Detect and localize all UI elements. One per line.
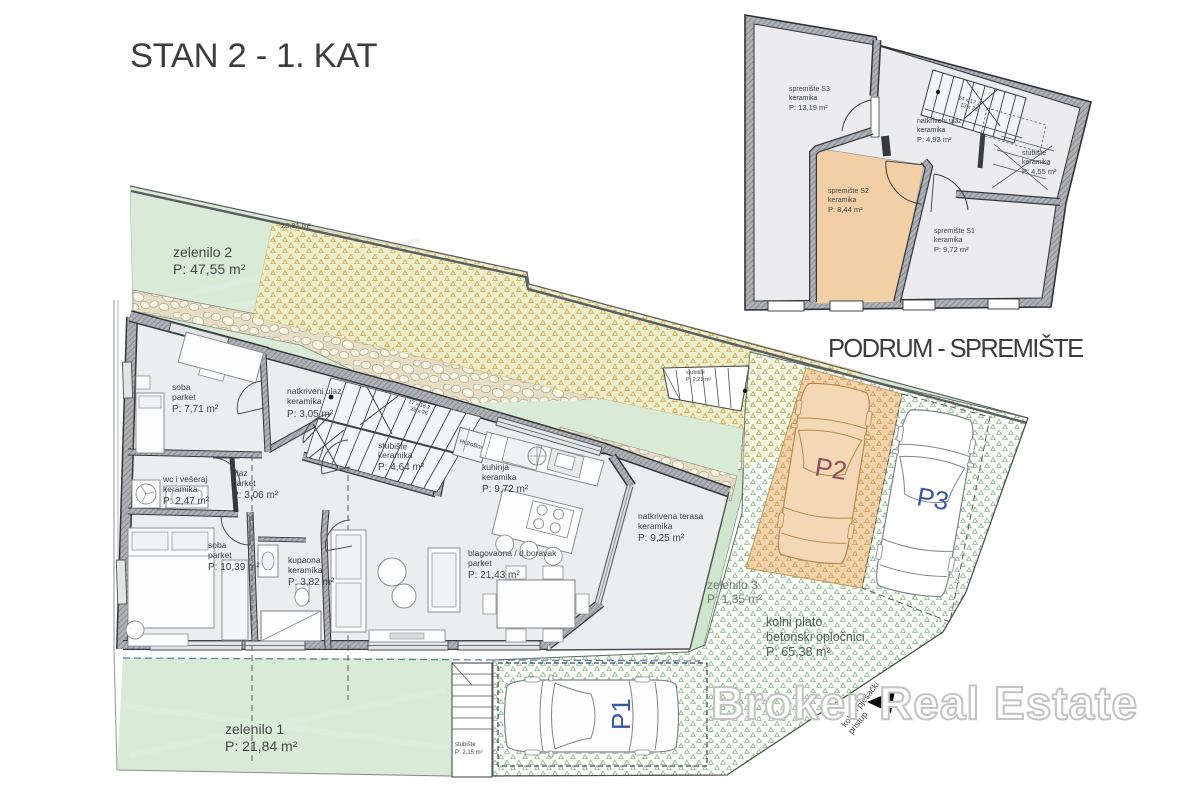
svg-text:soba: soba xyxy=(208,540,227,550)
svg-text:keramika: keramika xyxy=(378,450,413,460)
svg-text:Broker Real Estate: Broker Real Estate xyxy=(711,677,1138,729)
svg-text:P: 2,47 m²: P: 2,47 m² xyxy=(163,496,210,507)
svg-text:P: 21,43 m²: P: 21,43 m² xyxy=(468,570,520,581)
svg-text:P: 3,82 m²: P: 3,82 m² xyxy=(288,577,335,588)
svg-text:spremište S2: spremište S2 xyxy=(828,188,869,195)
svg-text:keramika: keramika xyxy=(1022,159,1051,166)
svg-text:keramika: keramika xyxy=(482,472,517,482)
svg-text:keramika: keramika xyxy=(917,127,946,134)
svg-text:keramika: keramika xyxy=(934,237,963,244)
svg-text:zelenilo 2: zelenilo 2 xyxy=(173,244,232,260)
svg-text:P1: P1 xyxy=(606,698,636,730)
svg-text:ulaz: ulaz xyxy=(232,468,248,478)
svg-text:parket: parket xyxy=(468,558,492,568)
svg-text:parket: parket xyxy=(172,392,196,402)
svg-text:P: 21,84 m²: P: 21,84 m² xyxy=(225,738,298,754)
svg-text:blagovaona / d.boravak: blagovaona / d.boravak xyxy=(468,548,557,558)
svg-text:kuhinja: kuhinja xyxy=(482,462,509,472)
svg-text:P: 3,05 m²: P: 3,05 m² xyxy=(287,409,334,420)
svg-text:P: 47,55 m²: P: 47,55 m² xyxy=(173,261,246,277)
svg-text:keramika: keramika xyxy=(288,565,323,575)
svg-text:keramika: keramika xyxy=(287,396,322,406)
svg-text:parket: parket xyxy=(208,550,232,560)
svg-text:P: 9,72 m²: P: 9,72 m² xyxy=(934,245,969,254)
svg-text:zelenilo 1: zelenilo 1 xyxy=(225,721,284,737)
svg-text:natkriveni ulaz: natkriveni ulaz xyxy=(287,386,341,396)
svg-text:P: 2,23 m²: P: 2,23 m² xyxy=(686,377,712,383)
svg-text:stubište: stubište xyxy=(1022,150,1046,157)
svg-text:keramika: keramika xyxy=(828,197,857,204)
svg-text:P3: P3 xyxy=(915,481,952,516)
svg-text:zelenilo 3: zelenilo 3 xyxy=(707,578,758,592)
svg-text:P: 8,44 m²: P: 8,44 m² xyxy=(828,205,863,214)
svg-text:keramika: keramika xyxy=(638,521,673,531)
svg-text:P2: P2 xyxy=(813,451,849,486)
svg-text:P: 65,38 m²: P: 65,38 m² xyxy=(766,645,831,659)
svg-text:natkrivena terasa: natkrivena terasa xyxy=(638,511,703,521)
svg-text:P: 9,25 m²: P: 9,25 m² xyxy=(638,533,685,544)
svg-text:stubište: stubište xyxy=(686,370,705,376)
svg-text:parket: parket xyxy=(232,478,256,488)
svg-text:STAN 2 - 1. KAT: STAN 2 - 1. KAT xyxy=(130,37,378,75)
svg-text:P: 7,71 m²: P: 7,71 m² xyxy=(172,404,219,415)
svg-text:P: 13,19 m²: P: 13,19 m² xyxy=(789,103,828,112)
svg-text:wc i vešeraj: wc i vešeraj xyxy=(162,474,208,484)
svg-text:P: 1,35 m²: P: 1,35 m² xyxy=(707,592,762,606)
svg-text:betonski opločnici: betonski opločnici xyxy=(766,630,865,644)
svg-text:P: 4,55 m²: P: 4,55 m² xyxy=(1022,167,1057,176)
svg-text:spremište S3: spremište S3 xyxy=(789,86,830,93)
svg-text:stubište: stubište xyxy=(455,742,476,748)
svg-text:PODRUM - SPREMIŠTE: PODRUM - SPREMIŠTE xyxy=(828,334,1083,363)
svg-text:soba: soba xyxy=(172,382,191,392)
svg-text:keramika: keramika xyxy=(163,484,198,494)
svg-text:kolni plato: kolni plato xyxy=(766,615,822,629)
svg-text:P: 3,06 m²: P: 3,06 m² xyxy=(232,490,279,501)
svg-text:kupaona: kupaona xyxy=(288,555,321,565)
svg-text:P: 4,64 m²: P: 4,64 m² xyxy=(378,462,425,473)
svg-text:P: 2,15 m²: P: 2,15 m² xyxy=(455,750,483,756)
svg-text:P: 10,39 m²: P: 10,39 m² xyxy=(208,562,260,573)
svg-text:keramika: keramika xyxy=(789,95,818,102)
svg-text:natkriveni ulaz: natkriveni ulaz xyxy=(917,118,962,125)
svg-text:P: 9,72 m²: P: 9,72 m² xyxy=(482,484,529,495)
svg-text:spremište S1: spremište S1 xyxy=(934,228,975,235)
svg-text:P: 4,93 m²: P: 4,93 m² xyxy=(917,135,952,144)
